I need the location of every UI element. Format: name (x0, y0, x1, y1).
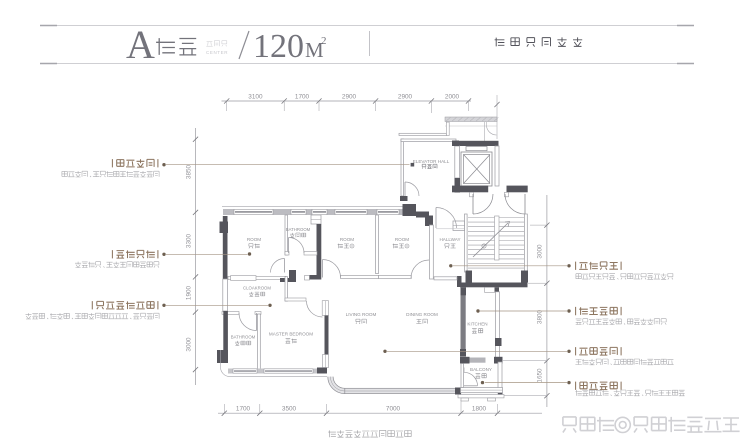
svg-text:KITCHEN: KITCHEN (467, 322, 487, 327)
svg-text:7000: 7000 (386, 405, 401, 412)
svg-text:CLOAKROOM: CLOAKROOM (243, 286, 271, 291)
svg-text:1700: 1700 (295, 94, 310, 101)
svg-text:2900: 2900 (342, 94, 357, 101)
svg-text:3850: 3850 (186, 164, 193, 179)
svg-text:BATHROOM: BATHROOM (231, 335, 256, 340)
svg-text:ROOM: ROOM (247, 237, 261, 242)
svg-text:2900: 2900 (398, 94, 413, 101)
svg-text:BALCONY: BALCONY (470, 367, 492, 372)
svg-text:3000: 3000 (537, 244, 544, 259)
svg-text:CENTER: CENTER (206, 50, 228, 55)
svg-text:3100: 3100 (248, 94, 263, 101)
svg-text:3000: 3000 (186, 337, 193, 352)
svg-text:1700: 1700 (236, 405, 251, 412)
svg-text:ROOM: ROOM (395, 237, 409, 242)
svg-text:HALLWAY: HALLWAY (439, 237, 460, 242)
svg-text:DINING ROOM: DINING ROOM (406, 312, 438, 317)
svg-text:1650: 1650 (537, 368, 544, 383)
svg-text:1900: 1900 (186, 285, 193, 300)
svg-text:A: A (126, 22, 155, 67)
svg-text:3300: 3300 (186, 233, 193, 248)
svg-text:ROOM: ROOM (340, 237, 354, 242)
svg-text:120: 120 (253, 28, 304, 65)
svg-text:3500: 3500 (282, 405, 297, 412)
svg-text:MASTER BEDROOM: MASTER BEDROOM (269, 332, 313, 337)
svg-text:2000: 2000 (445, 94, 460, 101)
svg-text:ELEVATOR HALL: ELEVATOR HALL (413, 159, 450, 164)
svg-text:3800: 3800 (537, 309, 544, 324)
svg-text:1800: 1800 (472, 405, 487, 412)
svg-text:BATHROOM: BATHROOM (286, 227, 311, 232)
svg-text:2: 2 (321, 35, 327, 47)
svg-text:LIVING ROOM: LIVING ROOM (346, 312, 377, 317)
